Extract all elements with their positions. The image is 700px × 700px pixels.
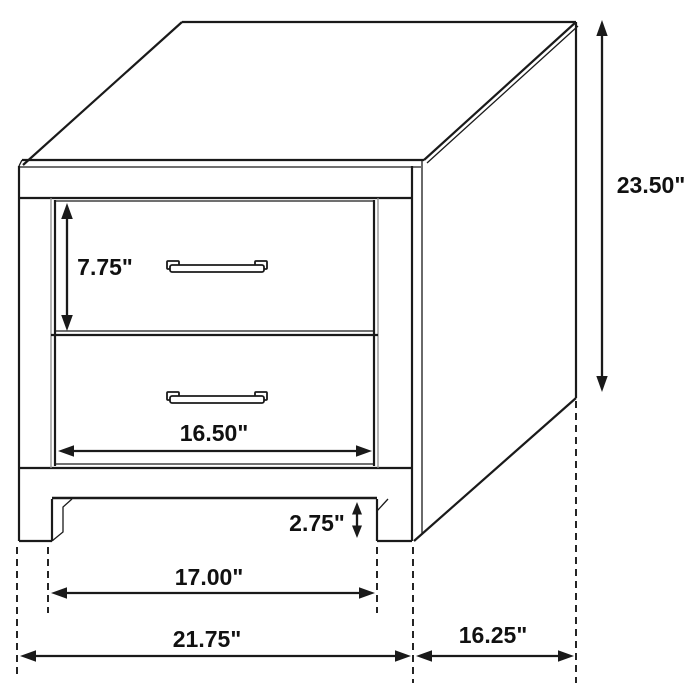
inner-base-width-label: 17.00" [175, 564, 243, 590]
side-bottom-edge [414, 398, 576, 541]
dim-overall-height [596, 20, 607, 392]
dim-overall-depth [416, 650, 574, 662]
arrow-left-icon [58, 445, 74, 457]
arrow-right-icon [558, 650, 574, 662]
base-clearance-label: 2.75" [289, 510, 345, 536]
tabletop-front-left-bevel [19, 160, 22, 166]
drawer2-handle [167, 392, 267, 403]
arrow-left-icon [51, 587, 67, 599]
drawer-width-label: 16.50" [180, 420, 248, 446]
drawer1-handle-bar [170, 265, 264, 272]
drawer1-handle [167, 261, 267, 272]
dim-drawer-width [58, 445, 372, 457]
arrow-up-icon [352, 502, 362, 515]
nightstand-dimension-diagram: 7.75" 16.50" 2.75" 23.50" 17.00" 21.75" … [0, 0, 700, 700]
tabletop-right-edge-inner [427, 26, 578, 163]
arrow-down-icon [61, 315, 73, 331]
dimension-labels: 7.75" 16.50" 2.75" 23.50" 17.00" 21.75" … [77, 172, 685, 652]
arrow-right-icon [356, 445, 372, 457]
dim-base-clearance [352, 502, 362, 538]
arrow-left-icon [416, 650, 432, 662]
base-legs [19, 499, 412, 541]
overall-width-label: 21.75" [173, 626, 241, 652]
overall-depth-label: 16.25" [459, 622, 527, 648]
arrow-up-icon [596, 20, 607, 36]
left-leg-inner-face [52, 499, 72, 541]
arrow-up-icon [61, 203, 73, 219]
arrow-right-icon [395, 650, 411, 662]
top-drawer-height-label: 7.75" [77, 254, 133, 280]
tabletop [19, 22, 578, 167]
drawer2-handle-bar [170, 396, 264, 403]
dim-top-drawer-height [61, 203, 73, 331]
front-frame [19, 166, 412, 541]
arrow-left-icon [20, 650, 36, 662]
overall-height-label: 23.50" [617, 172, 685, 198]
side-panel [414, 22, 576, 541]
arrow-down-icon [596, 376, 607, 392]
tabletop-right-edge [424, 22, 576, 160]
right-leg-inner-face [377, 499, 388, 511]
tabletop-left-edge [23, 22, 182, 165]
arrow-right-icon [359, 587, 375, 599]
nightstand-drawing [19, 22, 578, 541]
arrow-down-icon [352, 526, 362, 539]
diagram-canvas: 7.75" 16.50" 2.75" 23.50" 17.00" 21.75" … [0, 0, 700, 700]
